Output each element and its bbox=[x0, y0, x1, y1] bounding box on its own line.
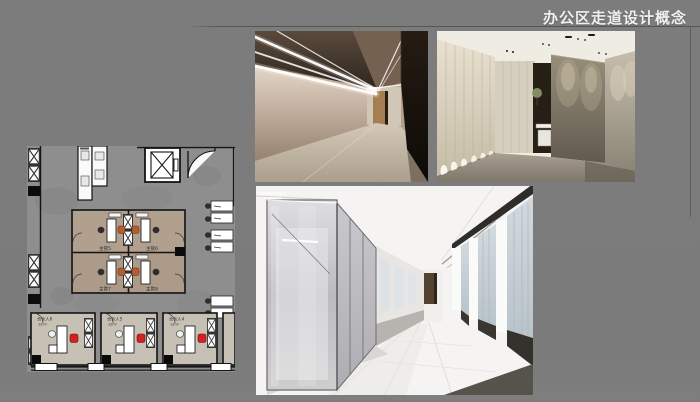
photo-concrete-lobby bbox=[437, 31, 635, 182]
right-wall bbox=[605, 51, 635, 173]
title-rule bbox=[187, 26, 700, 27]
photo-glass-corridor bbox=[256, 186, 533, 395]
room-area: 12m² bbox=[170, 323, 180, 327]
side-rule bbox=[690, 26, 691, 217]
room-area: 12m² bbox=[38, 323, 48, 327]
room-label: 合伙人6 bbox=[37, 316, 53, 323]
manager-office-block: 主管5 主管6 主管7 主管8 bbox=[72, 210, 185, 293]
concrete-wall bbox=[551, 55, 605, 163]
paneled-wall bbox=[437, 39, 495, 177]
room-area: 12m² bbox=[108, 323, 118, 327]
room-label: 主管5 bbox=[99, 245, 111, 252]
room-label: 主管8 bbox=[146, 286, 158, 293]
floor-plan-image: 主管5 主管6 主管7 主管8 bbox=[27, 146, 235, 372]
room-label: 合伙人5 bbox=[107, 316, 123, 323]
page-title: 办公区走道设计概念 bbox=[543, 7, 687, 28]
room-label: 主管6 bbox=[146, 245, 158, 252]
room-label: 合伙人4 bbox=[169, 316, 185, 323]
partner-rooms: 合伙人6 12m² 合伙人5 12m² bbox=[31, 313, 235, 365]
photo-led-corridor bbox=[255, 31, 428, 182]
slide: 办公区走道设计概念 bbox=[0, 0, 700, 402]
room-label: 主管7 bbox=[99, 286, 111, 293]
